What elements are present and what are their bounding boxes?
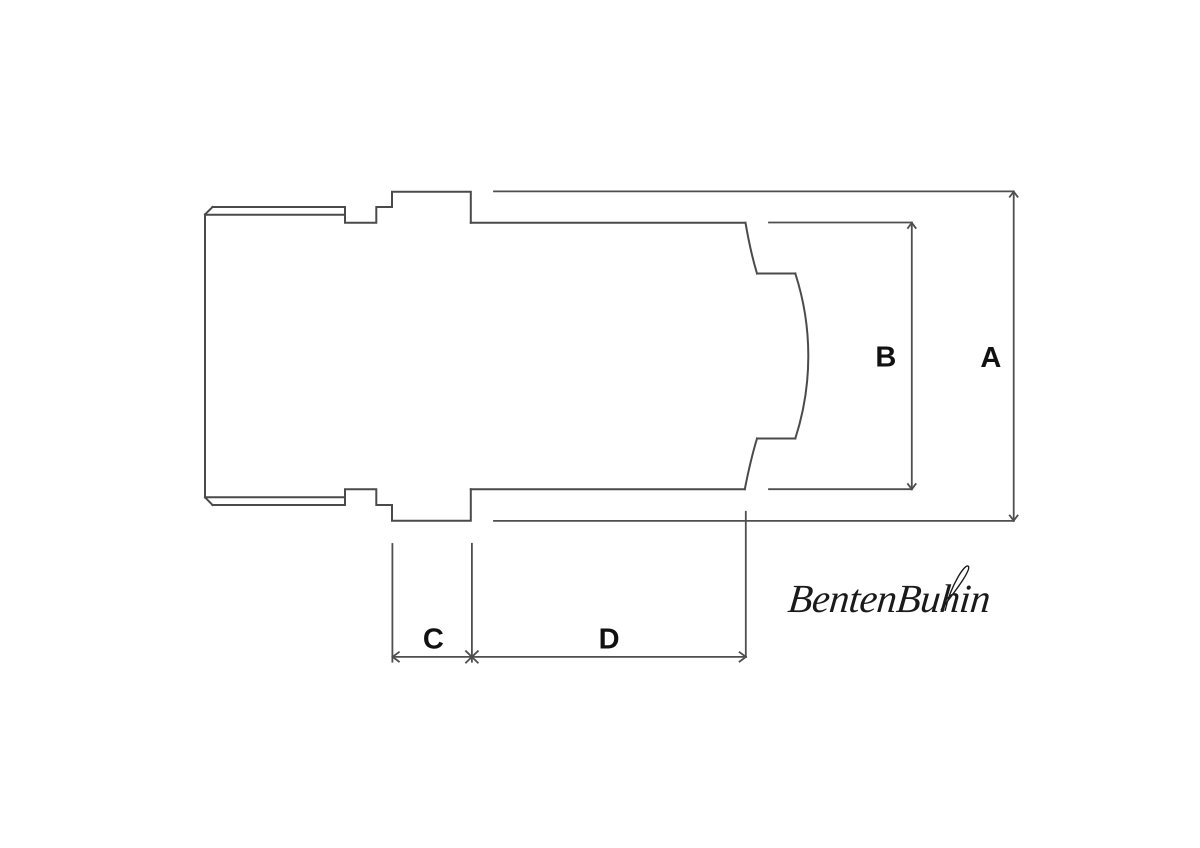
svg-text:C: C [423,624,444,656]
svg-text:B: B [875,342,896,374]
svg-text:D: D [599,624,620,656]
svg-text:A: A [980,342,1001,374]
